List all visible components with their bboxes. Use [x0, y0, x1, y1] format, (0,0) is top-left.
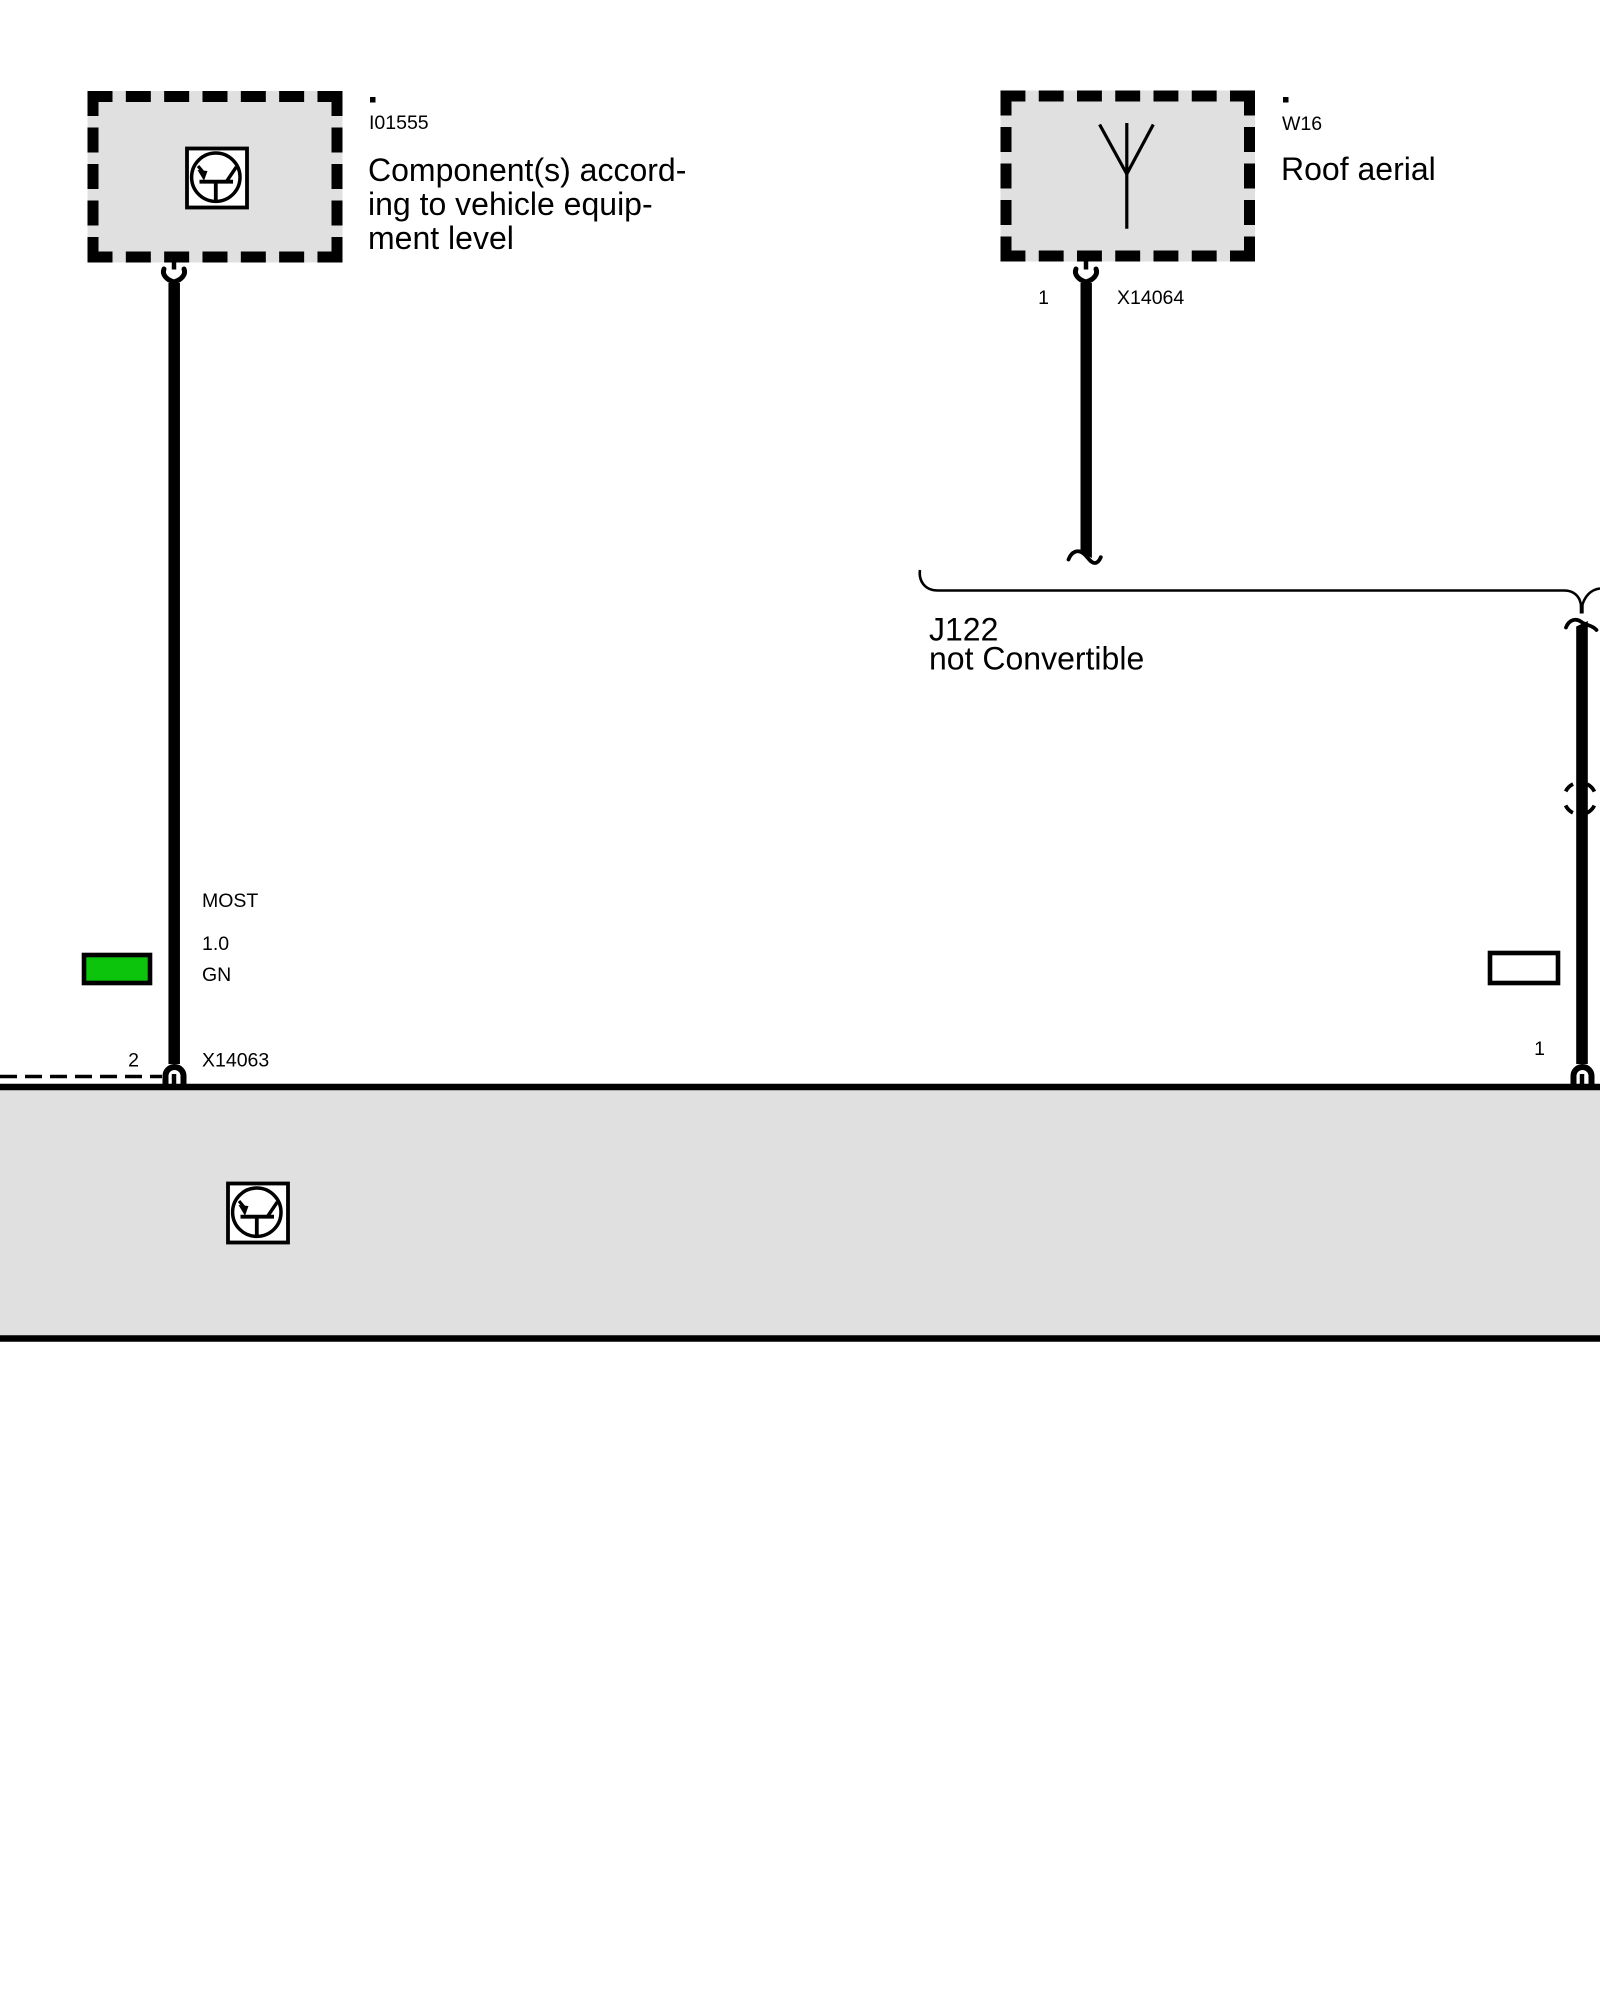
svg-text:W16: W16 — [1282, 113, 1322, 135]
svg-text:1: 1 — [1534, 1038, 1545, 1060]
svg-text:1.0: 1.0 — [202, 933, 229, 955]
svg-text:GN: GN — [202, 964, 231, 986]
svg-text:I01555: I01555 — [369, 112, 429, 134]
svg-text:MOST: MOST — [202, 890, 258, 912]
svg-text:2: 2 — [128, 1050, 139, 1072]
svg-text:1: 1 — [1038, 287, 1049, 309]
svg-text:X14063: X14063 — [202, 1050, 269, 1072]
svg-text:X14064: X14064 — [1117, 287, 1184, 309]
svg-text:Roof aerial: Roof aerial — [1281, 151, 1436, 187]
